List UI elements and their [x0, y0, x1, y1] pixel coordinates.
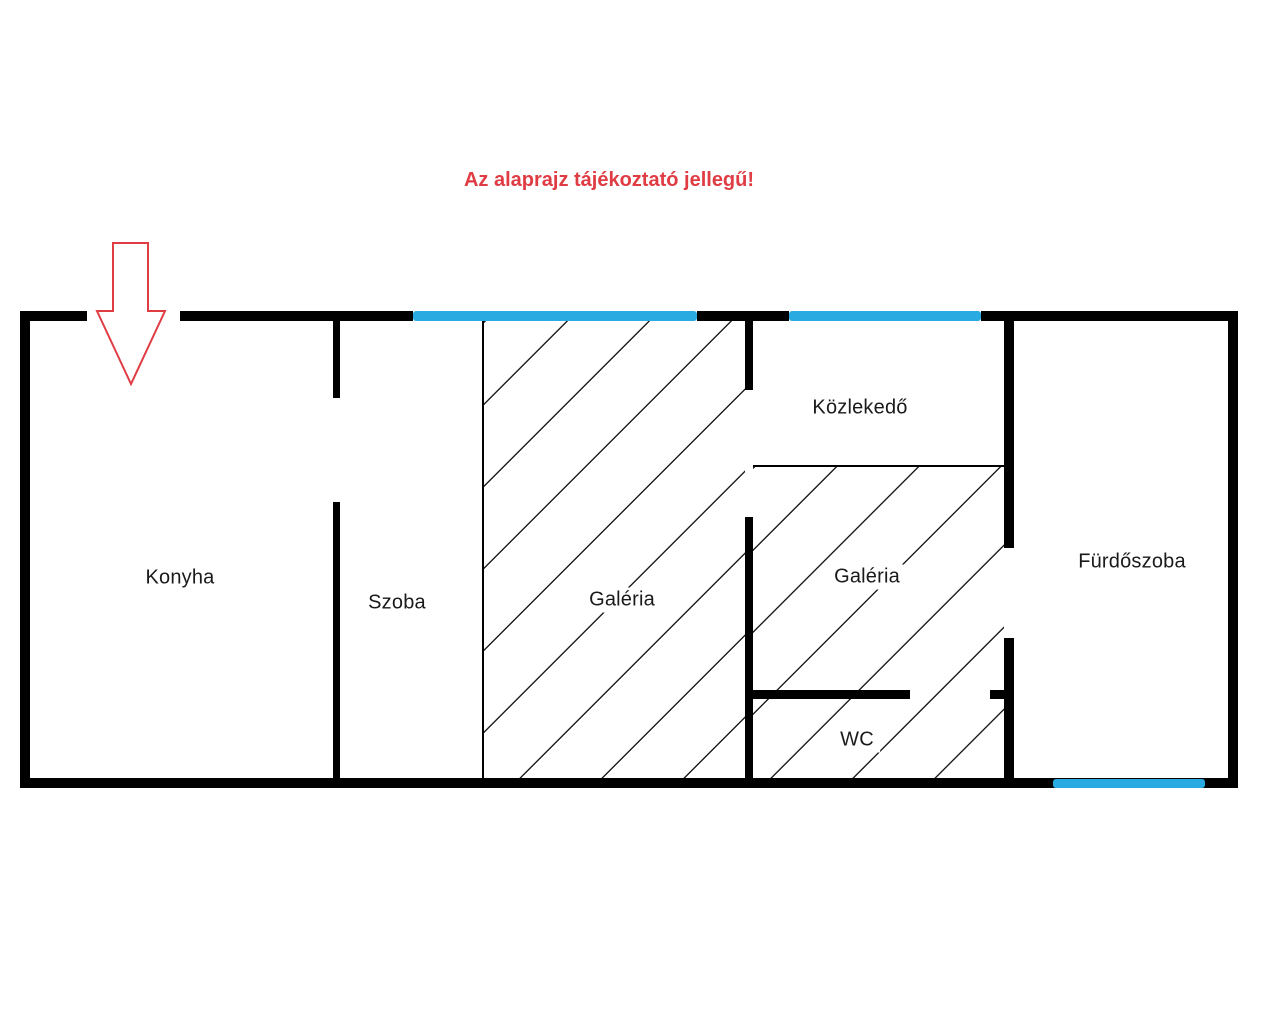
room-label-galeria-left: Galéria: [583, 588, 661, 613]
entrance-arrow-icon: [93, 240, 169, 388]
line-kozlekedo-galeria: [753, 465, 1004, 467]
window-top-right: [789, 311, 981, 321]
wall-left: [20, 311, 30, 788]
wall-galeria-furdoszoba-upper: [1004, 311, 1014, 548]
room-label-kozlekedo: Közlekedő: [812, 397, 907, 420]
line-szoba-galeria: [482, 321, 484, 778]
room-label-konyha: Konyha: [145, 567, 214, 590]
wall-galeria-kozlekedo-lower: [745, 517, 753, 788]
room-label-galeria-right: Galéria: [828, 565, 906, 590]
wall-top-segment-1: [20, 311, 87, 321]
hatch-area-galeria-left: [484, 321, 745, 778]
entrance-arrow-shape: [97, 243, 165, 384]
wall-galeria-kozlekedo-upper: [745, 311, 753, 390]
room-label-wc: WC: [834, 728, 880, 753]
wall-wc-top: [745, 690, 910, 699]
wall-wc-top-stub: [990, 690, 1004, 699]
window-bottom: [1053, 779, 1205, 788]
wall-right: [1228, 311, 1238, 788]
room-label-szoba: Szoba: [368, 592, 426, 615]
disclaimer-text: Az alaprajz tájékoztató jellegű!: [464, 169, 754, 192]
floor-plan: Az alaprajz tájékoztató jellegű! Konyha …: [0, 0, 1280, 1023]
wall-top-segment-2: [180, 311, 413, 321]
wall-top-segment-3: [697, 311, 789, 321]
wall-galeria-furdoszoba-lower: [1004, 638, 1014, 788]
room-label-furdoszoba: Fürdőszoba: [1078, 551, 1186, 574]
wall-top-segment-4: [981, 311, 1238, 321]
wall-konyha-szoba-lower: [333, 502, 340, 788]
wall-konyha-szoba-upper: [333, 311, 340, 398]
window-top-left: [413, 311, 697, 321]
